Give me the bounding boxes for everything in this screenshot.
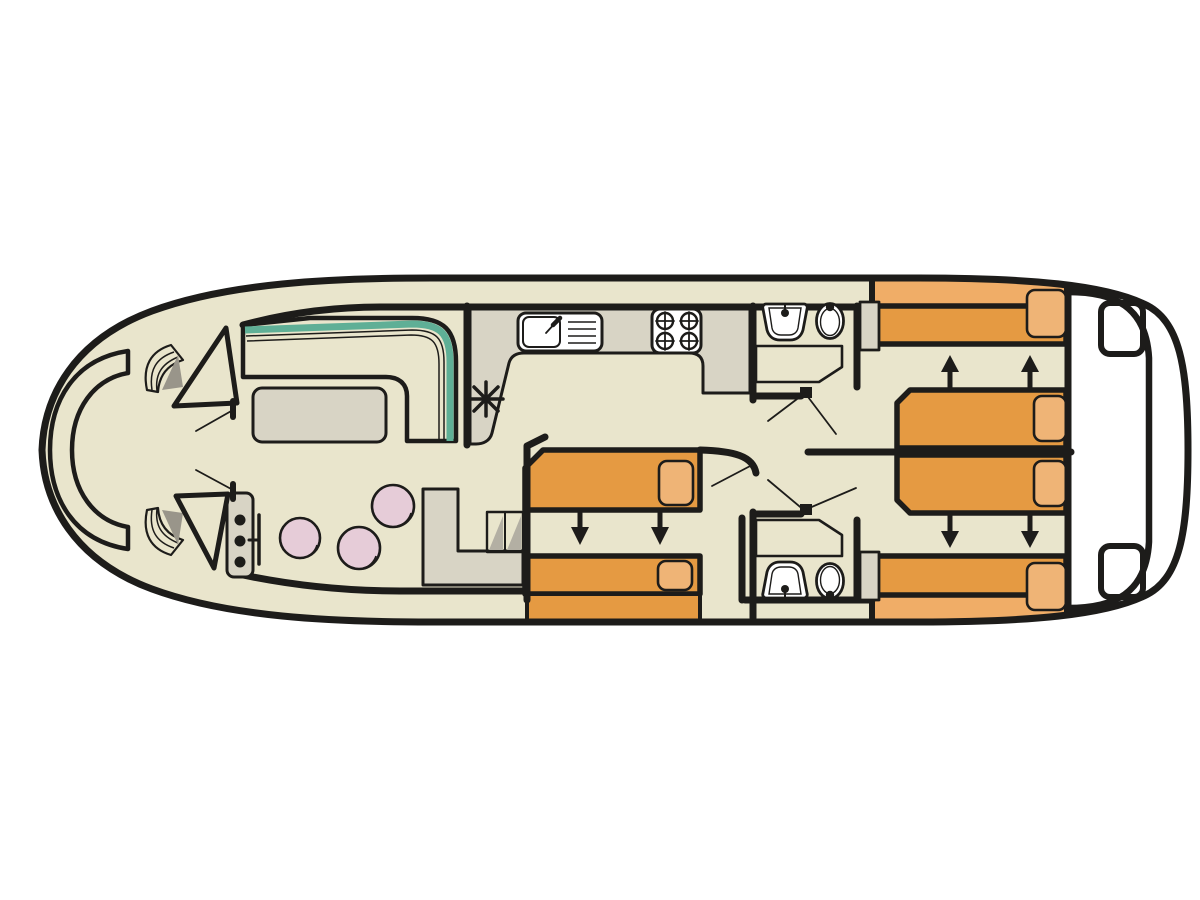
pillow xyxy=(658,561,692,590)
pillow xyxy=(1034,396,1066,441)
console-knobs xyxy=(235,515,246,568)
wardrobe-aft xyxy=(860,552,879,600)
bed-strip-midship xyxy=(527,594,700,621)
pillow xyxy=(1027,290,1066,337)
door-leaf-aft-bath xyxy=(800,504,812,515)
floor-plan-canvas xyxy=(0,0,1200,900)
pillow xyxy=(1027,563,1066,610)
toilet-flush-aft xyxy=(826,591,834,599)
heater-icon xyxy=(469,382,503,416)
pillow xyxy=(659,461,693,505)
saloon-table xyxy=(253,388,386,442)
stool xyxy=(338,527,380,569)
boat-floor-plan xyxy=(0,0,1200,900)
wardrobe-fwd xyxy=(860,302,879,350)
toilet-flush-fwd xyxy=(826,303,834,311)
pillow xyxy=(1034,461,1066,506)
